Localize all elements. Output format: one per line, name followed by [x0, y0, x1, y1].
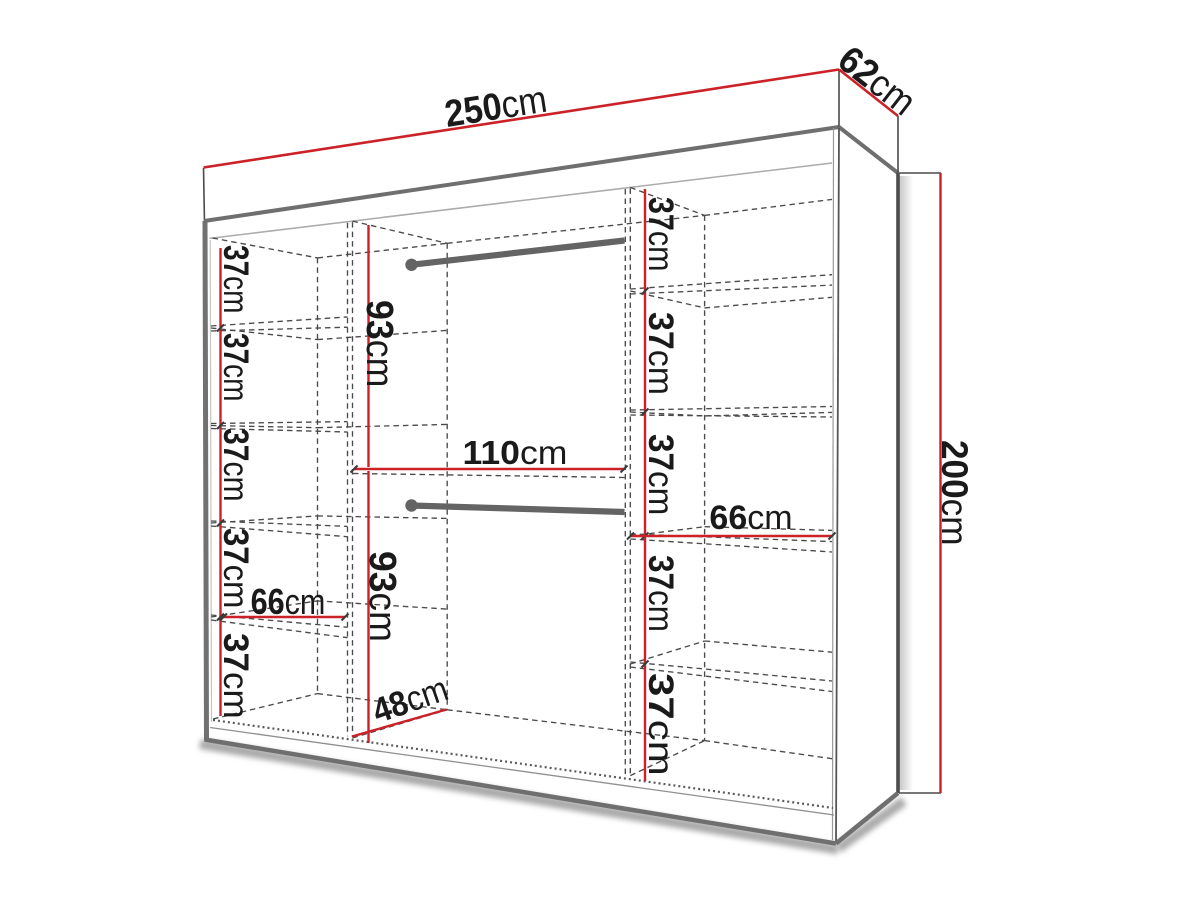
svg-text:37cm: 37cm	[641, 673, 680, 776]
svg-text:37cm: 37cm	[216, 333, 256, 401]
svg-text:37cm: 37cm	[216, 633, 255, 719]
svg-text:66cm: 66cm	[251, 583, 326, 623]
svg-text:37cm: 37cm	[642, 197, 681, 271]
svg-text:93cm: 93cm	[359, 300, 401, 387]
svg-text:37cm: 37cm	[641, 555, 680, 632]
svg-text:66cm: 66cm	[709, 499, 792, 537]
svg-text:37cm: 37cm	[641, 312, 680, 395]
svg-text:37cm: 37cm	[641, 434, 680, 515]
svg-text:93cm: 93cm	[362, 551, 404, 642]
svg-text:37cm: 37cm	[216, 245, 256, 313]
svg-text:37cm: 37cm	[216, 428, 256, 502]
svg-text:110cm: 110cm	[463, 435, 568, 472]
svg-text:37cm: 37cm	[216, 528, 255, 608]
svg-text:200cm: 200cm	[934, 440, 976, 545]
